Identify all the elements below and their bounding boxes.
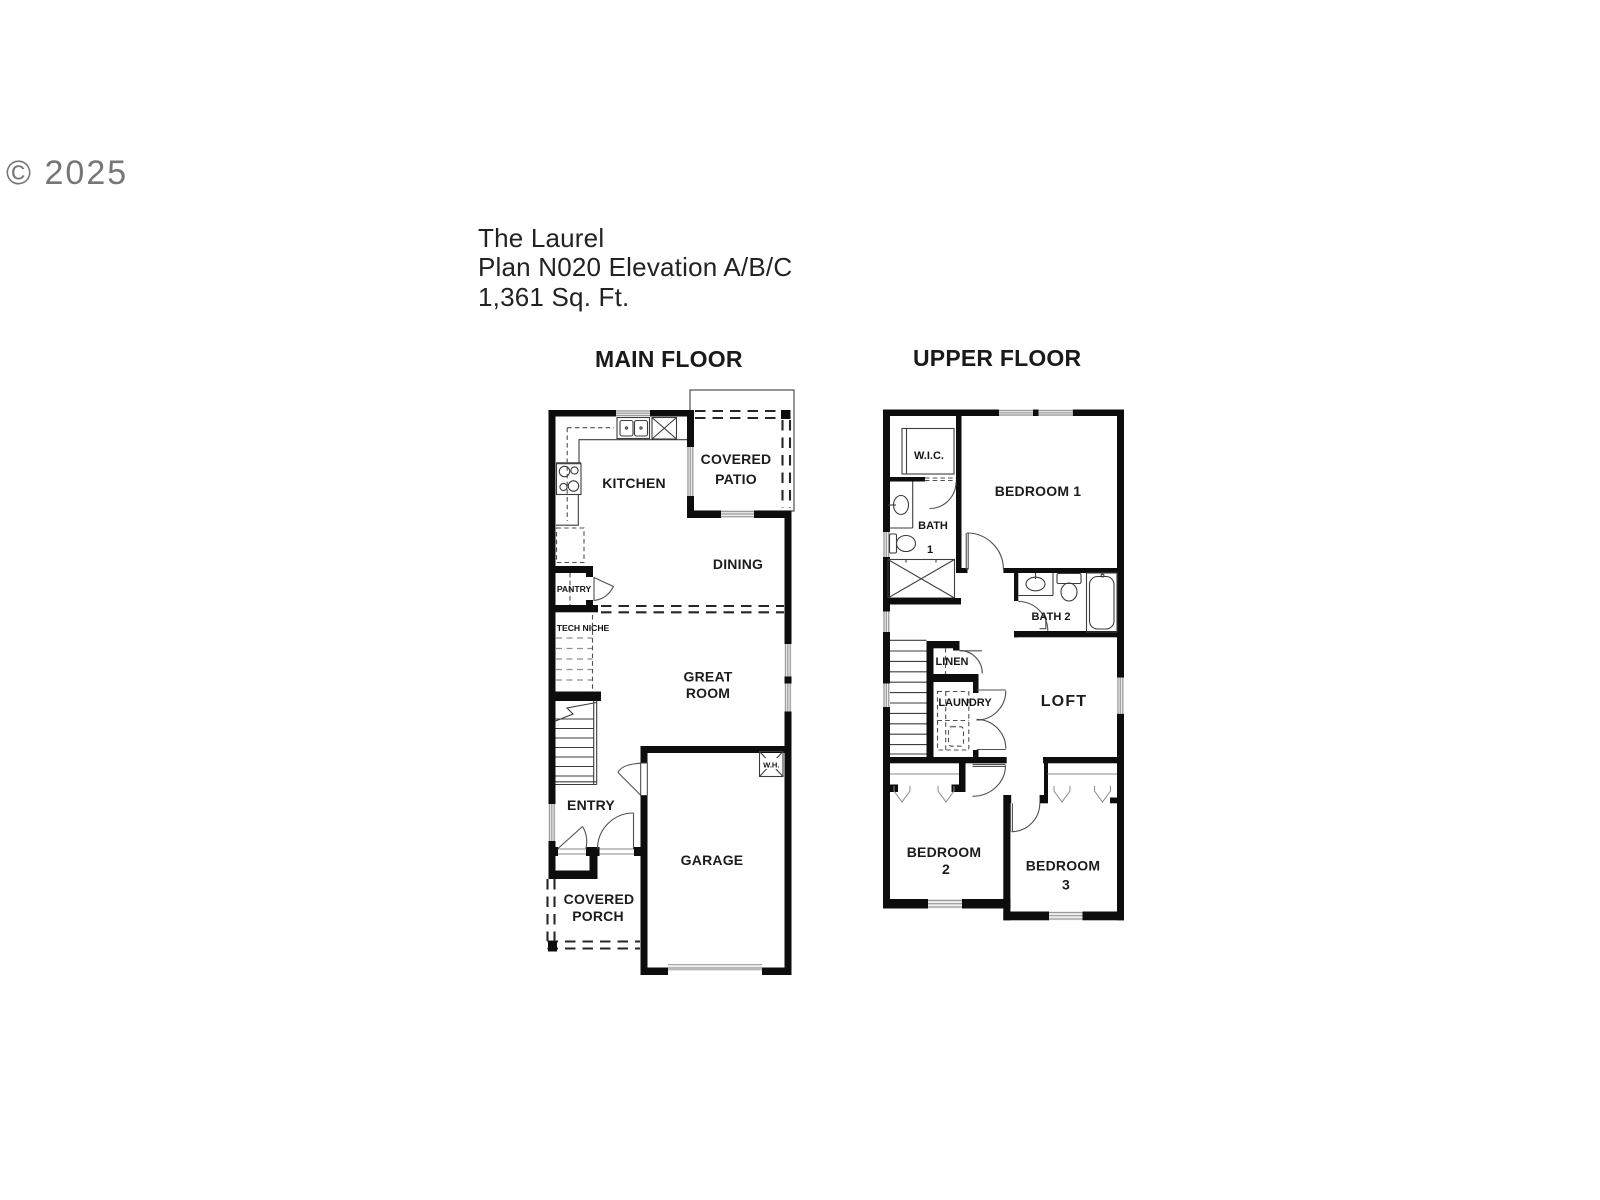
svg-text:ENTRY: ENTRY xyxy=(567,797,615,813)
svg-text:LAUNDRY: LAUNDRY xyxy=(938,697,992,709)
svg-text:COVERED: COVERED xyxy=(564,891,635,907)
svg-text:ROOM: ROOM xyxy=(686,685,730,701)
svg-text:1: 1 xyxy=(927,544,933,556)
svg-text:The Laurel: The Laurel xyxy=(478,223,604,253)
svg-text:TECH NICHE: TECH NICHE xyxy=(557,623,610,633)
svg-text:PORCH: PORCH xyxy=(572,908,624,924)
svg-text:3: 3 xyxy=(1062,877,1070,893)
svg-text:2: 2 xyxy=(942,861,950,877)
svg-text:UPPER FLOOR: UPPER FLOOR xyxy=(913,345,1082,371)
svg-text:KITCHEN: KITCHEN xyxy=(602,475,666,491)
svg-text:MAIN FLOOR: MAIN FLOOR xyxy=(595,346,743,372)
svg-text:W.H.: W.H. xyxy=(763,761,779,770)
svg-text:Plan N020 Elevation A/B/C: Plan N020 Elevation A/B/C xyxy=(478,252,792,282)
svg-text:PATIO: PATIO xyxy=(715,471,757,487)
svg-text:LOFT: LOFT xyxy=(1041,693,1088,710)
svg-text:BATH 2: BATH 2 xyxy=(1032,611,1071,623)
svg-text:BEDROOM: BEDROOM xyxy=(907,844,982,860)
svg-text:DINING: DINING xyxy=(713,556,763,572)
svg-text:LINEN: LINEN xyxy=(936,656,969,668)
svg-text:© 2025: © 2025 xyxy=(6,154,128,192)
svg-text:PANTRY: PANTRY xyxy=(557,584,592,594)
svg-text:COVERED: COVERED xyxy=(701,451,772,467)
svg-text:BEDROOM 1: BEDROOM 1 xyxy=(995,483,1082,499)
svg-text:W.I.C.: W.I.C. xyxy=(914,450,944,462)
svg-text:GARAGE: GARAGE xyxy=(681,852,744,868)
svg-text:BATH: BATH xyxy=(918,520,948,532)
svg-text:1,361 Sq. Ft.: 1,361 Sq. Ft. xyxy=(478,282,629,312)
svg-text:GREAT: GREAT xyxy=(684,669,733,685)
svg-text:BEDROOM: BEDROOM xyxy=(1026,858,1101,874)
